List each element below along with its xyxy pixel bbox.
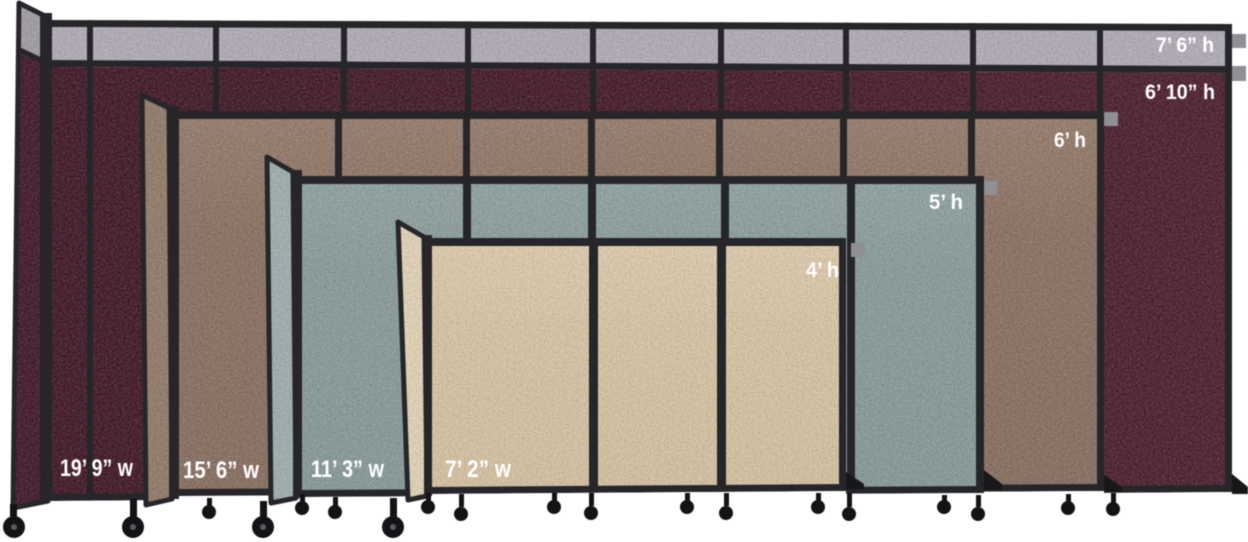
svg-text:6’ h: 6’ h [1054, 129, 1086, 152]
svg-text:4’ h: 4’ h [806, 259, 839, 282]
svg-text:19’ 9” w: 19’ 9” w [60, 455, 133, 482]
svg-text:6’ 10” h: 6’ 10” h [1145, 81, 1215, 104]
svg-text:7’ 6” h: 7’ 6” h [1156, 34, 1214, 57]
svg-text:11’ 3” w: 11’ 3” w [311, 456, 384, 483]
svg-text:5’ h: 5’ h [929, 191, 963, 214]
svg-text:15’ 6” w: 15’ 6” w [183, 457, 259, 484]
svg-text:7’ 2” w: 7’ 2” w [445, 456, 511, 483]
